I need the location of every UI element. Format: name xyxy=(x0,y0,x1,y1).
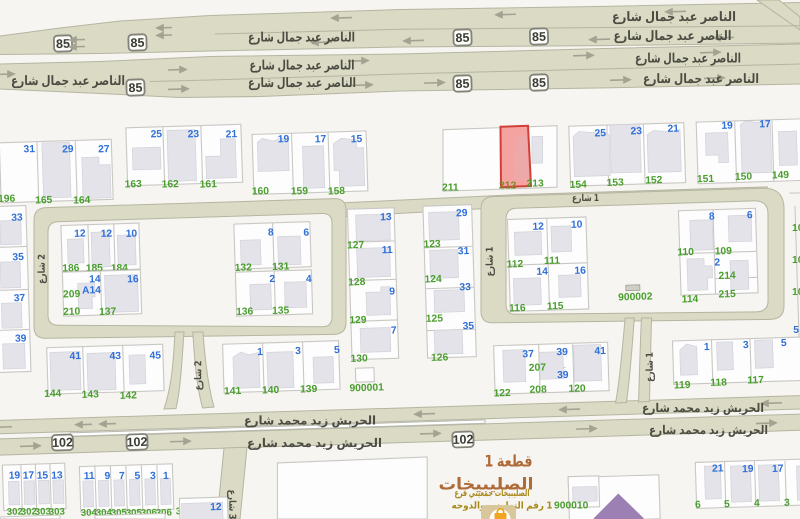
svg-text:25: 25 xyxy=(594,128,606,139)
svg-text:21: 21 xyxy=(225,129,237,140)
svg-text:9: 9 xyxy=(104,471,110,482)
svg-text:10: 10 xyxy=(126,229,138,240)
svg-text:8: 8 xyxy=(709,211,715,222)
svg-text:125: 125 xyxy=(426,313,444,325)
svg-text:164: 164 xyxy=(73,195,91,207)
svg-text:118: 118 xyxy=(710,377,727,389)
svg-text:17: 17 xyxy=(772,464,784,475)
svg-text:122: 122 xyxy=(493,388,511,400)
svg-text:150: 150 xyxy=(735,171,753,183)
svg-text:126: 126 xyxy=(431,352,449,364)
svg-text:21: 21 xyxy=(667,124,679,135)
svg-text:7: 7 xyxy=(119,471,125,482)
svg-text:900002: 900002 xyxy=(618,291,653,303)
svg-text:11: 11 xyxy=(84,471,95,482)
svg-text:19: 19 xyxy=(721,121,733,132)
svg-text:6: 6 xyxy=(695,500,701,511)
svg-text:102: 102 xyxy=(52,435,73,450)
svg-text:17: 17 xyxy=(315,134,327,145)
svg-text:111: 111 xyxy=(544,256,561,268)
svg-text:9: 9 xyxy=(389,287,395,298)
svg-text:37: 37 xyxy=(14,293,26,304)
svg-text:41: 41 xyxy=(69,351,81,362)
svg-text:3: 3 xyxy=(150,471,156,482)
svg-text:12: 12 xyxy=(101,229,113,240)
svg-text:41: 41 xyxy=(594,346,606,357)
svg-text:154: 154 xyxy=(569,180,587,192)
svg-text:85: 85 xyxy=(532,30,546,44)
svg-text:45: 45 xyxy=(149,350,161,361)
svg-text:31: 31 xyxy=(458,246,470,257)
svg-text:128: 128 xyxy=(348,277,366,289)
svg-text:127: 127 xyxy=(347,240,365,252)
svg-text:17: 17 xyxy=(23,470,35,481)
svg-text:6: 6 xyxy=(747,210,753,221)
svg-text:5: 5 xyxy=(793,325,799,336)
svg-text:140: 140 xyxy=(262,385,280,397)
svg-text:158: 158 xyxy=(328,186,346,198)
svg-text:16: 16 xyxy=(127,274,139,285)
svg-text:124: 124 xyxy=(424,274,442,286)
svg-text:136: 136 xyxy=(236,306,254,318)
svg-text:119: 119 xyxy=(674,380,691,392)
svg-text:85: 85 xyxy=(128,81,142,95)
svg-text:142: 142 xyxy=(120,390,138,402)
svg-text:1: 1 xyxy=(704,342,710,353)
svg-text:11: 11 xyxy=(382,245,393,256)
svg-text:19: 19 xyxy=(742,464,754,475)
svg-text:129: 129 xyxy=(349,315,367,327)
svg-text:31: 31 xyxy=(23,144,35,155)
svg-text:39: 39 xyxy=(556,347,568,358)
svg-text:120: 120 xyxy=(568,383,586,395)
svg-text:15: 15 xyxy=(351,134,363,145)
svg-text:5: 5 xyxy=(334,345,340,356)
svg-text:10: 10 xyxy=(571,220,583,231)
svg-text:213: 213 xyxy=(527,179,544,190)
svg-text:112: 112 xyxy=(506,259,523,271)
svg-text:1: 1 xyxy=(163,471,169,482)
svg-text:1: 1 xyxy=(257,347,263,358)
svg-text:2: 2 xyxy=(269,274,275,285)
svg-text:900010: 900010 xyxy=(554,501,589,512)
svg-text:196: 196 xyxy=(0,194,16,206)
svg-text:5: 5 xyxy=(781,338,787,349)
svg-text:109: 109 xyxy=(715,246,733,258)
svg-text:25: 25 xyxy=(150,129,162,140)
svg-text:2: 2 xyxy=(714,257,720,268)
svg-text:85: 85 xyxy=(130,36,144,50)
svg-text:135: 135 xyxy=(272,305,290,317)
svg-text:13: 13 xyxy=(380,212,392,223)
svg-text:162: 162 xyxy=(161,179,179,191)
svg-text:35: 35 xyxy=(12,252,24,263)
svg-text:27: 27 xyxy=(98,144,110,155)
svg-text:161: 161 xyxy=(200,179,218,191)
svg-text:151: 151 xyxy=(697,174,715,186)
svg-text:114: 114 xyxy=(682,294,699,306)
svg-text:116: 116 xyxy=(509,303,526,315)
svg-text:23: 23 xyxy=(630,126,642,137)
svg-text:85: 85 xyxy=(455,77,469,91)
svg-text:39: 39 xyxy=(557,370,569,381)
svg-text:12: 12 xyxy=(74,228,86,239)
svg-text:207: 207 xyxy=(529,362,547,374)
svg-text:85: 85 xyxy=(56,37,70,51)
svg-text:900001: 900001 xyxy=(349,382,384,394)
svg-text:14: 14 xyxy=(89,274,101,285)
svg-text:208: 208 xyxy=(529,384,547,396)
svg-text:33: 33 xyxy=(459,282,471,293)
svg-text:115: 115 xyxy=(547,301,564,313)
svg-text:33: 33 xyxy=(11,213,23,224)
svg-text:212: 212 xyxy=(499,181,516,192)
svg-text:214: 214 xyxy=(718,270,736,282)
svg-text:14: 14 xyxy=(536,267,548,278)
svg-text:3: 3 xyxy=(743,340,749,351)
svg-text:3: 3 xyxy=(295,346,301,357)
svg-text:8: 8 xyxy=(268,227,274,238)
svg-text:152: 152 xyxy=(645,175,663,187)
svg-text:149: 149 xyxy=(772,170,790,182)
svg-text:37: 37 xyxy=(522,349,534,360)
svg-text:29: 29 xyxy=(456,208,468,219)
svg-text:19: 19 xyxy=(9,470,21,481)
svg-text:39: 39 xyxy=(15,333,27,344)
svg-text:29: 29 xyxy=(62,144,74,155)
svg-text:117: 117 xyxy=(747,375,764,387)
svg-text:141: 141 xyxy=(224,386,242,398)
svg-text:139: 139 xyxy=(300,384,318,396)
svg-text:160: 160 xyxy=(252,186,270,198)
svg-text:143: 143 xyxy=(82,389,100,401)
svg-text:19: 19 xyxy=(278,134,290,145)
svg-text:12: 12 xyxy=(210,502,222,513)
svg-text:A14: A14 xyxy=(82,285,101,297)
svg-text:13: 13 xyxy=(51,470,63,481)
svg-text:5: 5 xyxy=(724,499,730,510)
svg-text:123: 123 xyxy=(423,239,441,251)
svg-text:35: 35 xyxy=(462,321,474,332)
svg-text:159: 159 xyxy=(291,186,309,198)
svg-text:209: 209 xyxy=(63,289,81,301)
svg-text:106: 106 xyxy=(792,287,800,298)
svg-text:21: 21 xyxy=(712,463,724,474)
svg-text:110: 110 xyxy=(677,247,694,259)
svg-text:130: 130 xyxy=(350,353,368,365)
svg-text:23: 23 xyxy=(187,129,199,140)
svg-text:137: 137 xyxy=(99,306,117,318)
svg-text:102: 102 xyxy=(126,435,147,450)
svg-text:43: 43 xyxy=(109,351,121,362)
svg-text:5: 5 xyxy=(134,471,140,482)
svg-text:144: 144 xyxy=(44,388,62,400)
svg-text:7: 7 xyxy=(391,325,397,336)
svg-text:165: 165 xyxy=(35,195,53,207)
svg-text:107: 107 xyxy=(792,255,800,266)
svg-text:15: 15 xyxy=(37,470,49,481)
svg-text:163: 163 xyxy=(124,179,142,191)
svg-text:210: 210 xyxy=(63,306,81,318)
svg-text:215: 215 xyxy=(718,289,736,301)
svg-text:12: 12 xyxy=(532,222,544,233)
svg-text:4: 4 xyxy=(306,274,312,285)
svg-text:17: 17 xyxy=(759,119,771,130)
svg-text:85: 85 xyxy=(455,31,469,45)
svg-text:85: 85 xyxy=(532,76,546,90)
svg-text:3: 3 xyxy=(784,498,790,509)
svg-text:108: 108 xyxy=(792,223,800,234)
svg-text:102: 102 xyxy=(452,432,473,447)
svg-text:16: 16 xyxy=(574,266,586,277)
svg-text:6: 6 xyxy=(303,228,309,239)
svg-text:4: 4 xyxy=(754,498,760,509)
svg-text:211: 211 xyxy=(442,183,459,194)
svg-text:153: 153 xyxy=(606,177,624,189)
